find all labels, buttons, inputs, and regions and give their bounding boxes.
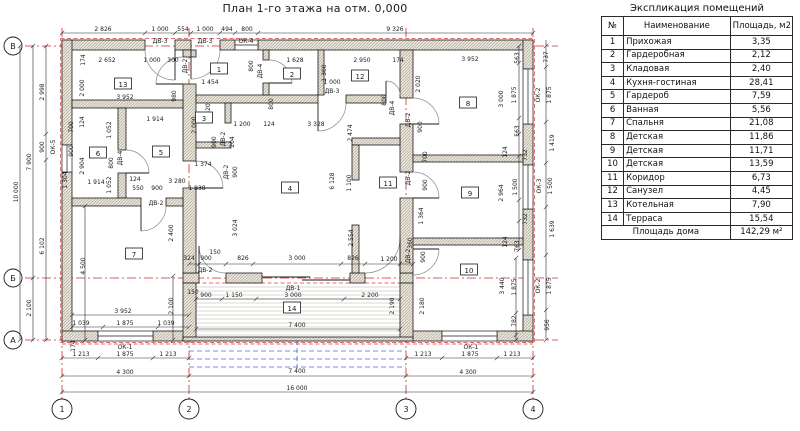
dimension-label: 2 652: [98, 57, 115, 64]
dimension-label: ДВ-4: [257, 63, 264, 78]
table-row: 13Котельная7,90: [602, 199, 793, 213]
room-number: 4: [288, 185, 293, 193]
dimension-label: 1 150: [225, 292, 242, 299]
schedule-table: № Наименование Площадь, м2 1Прихожая3,35…: [601, 16, 793, 240]
dimension-label: 1 213: [159, 351, 176, 358]
dimension-label: 3 328: [307, 121, 324, 128]
room-number: 5: [159, 149, 163, 157]
table-cell: Санузел: [624, 185, 731, 199]
table-cell: 21,08: [730, 117, 792, 131]
dimension-label: 1 100: [346, 174, 353, 191]
room-number: 7: [132, 251, 136, 259]
dimension-label: 900: [417, 121, 424, 133]
room-number-tag: 3: [196, 112, 213, 123]
table-cell: 11,71: [730, 144, 792, 158]
dimension-label: 900: [68, 145, 75, 157]
dimension-label: ДВ-3: [198, 38, 213, 45]
dimension-label: 900: [151, 185, 163, 192]
dimension-label: 1 000: [151, 26, 168, 33]
dimension-label: 900: [232, 166, 239, 178]
dimension-label: 1 052: [106, 176, 113, 193]
dimension-label: 3 952: [116, 94, 133, 101]
table-cell: Кладовая: [624, 63, 731, 77]
table-cell: Терраса: [624, 212, 731, 226]
dimension-line: [60, 31, 535, 35]
table-cell: 28,41: [730, 76, 792, 90]
dimension-label: 2 964: [498, 184, 505, 201]
dimension-label: 324: [183, 255, 195, 262]
table-row: 8Детская11,86: [602, 131, 793, 145]
table-cell: 11,86: [730, 131, 792, 145]
room-number-tag: 8: [460, 97, 477, 108]
dimension-label: 1 213: [72, 351, 89, 358]
dimension-label: 1 875: [546, 277, 553, 294]
dimension-label: 1 500: [547, 177, 554, 194]
table-row: 5Гардероб7,59: [602, 90, 793, 104]
table-cell: 13: [602, 199, 624, 213]
dimension-label: 2 200: [361, 292, 378, 299]
dimension-label: 1 875: [116, 320, 133, 327]
dimension-label: 900: [420, 251, 427, 263]
dimension-label: 150: [187, 289, 199, 296]
dimension-label: 554: [177, 26, 189, 33]
dimension-label: 16 000: [287, 385, 308, 392]
dimension-label: 782: [511, 315, 518, 327]
dimension-label: 1 628: [286, 57, 303, 64]
grid-bubble: 4: [523, 399, 543, 419]
dimension-label: 150: [209, 249, 221, 256]
room-number-tag: 10: [461, 264, 478, 275]
grid-bubble: Б: [4, 269, 22, 287]
dimension-label: ОК-2: [535, 278, 542, 293]
dimension-label: 1 213: [503, 351, 520, 358]
dimension-label: 4 500: [80, 257, 87, 274]
table-cell: 2,12: [730, 49, 792, 63]
dimension-label: 2 100: [168, 297, 175, 314]
dimension-label: 2 400: [168, 224, 175, 241]
dimension-label: 1 000: [196, 26, 213, 33]
table-cell: 4,45: [730, 185, 792, 199]
dimension-label: 3 000: [288, 255, 305, 262]
grid-bubble: А: [4, 331, 22, 349]
grid-bubble-label: А: [10, 336, 16, 345]
table-cell: Детская: [624, 158, 731, 172]
dimension-label: 2 190: [389, 297, 396, 314]
dimension-label: 800: [241, 26, 253, 33]
dimension-label: 1 454: [201, 79, 218, 86]
dimension-label: 900: [200, 255, 212, 262]
table-cell: 6: [602, 103, 624, 117]
table-row: 6Ванная5,56: [602, 103, 793, 117]
dimension-label: ДВ-4: [117, 150, 124, 165]
room-number-tag: 11: [380, 177, 397, 188]
dimension-label: 2 000: [79, 79, 86, 96]
dimension-label: 800: [268, 98, 275, 110]
dimension-label: 1 875: [546, 86, 553, 103]
dimension-label: 3 024: [232, 219, 239, 236]
table-cell: 8: [602, 131, 624, 145]
table-cell: Ванная: [624, 103, 731, 117]
dimension-label: 550: [132, 185, 144, 192]
total-area-value: 142,29 м²: [730, 226, 792, 240]
room-number-tag: 4: [282, 182, 299, 193]
dimension-label: 7 400: [288, 368, 305, 375]
col-header-area: Площадь, м2: [730, 17, 792, 36]
dimension-label: 1 875: [511, 86, 518, 103]
schedule-title: Экспликация помещений: [601, 3, 793, 14]
dimension-label: ОК-4: [239, 38, 254, 45]
dimension-label: 3 440: [499, 277, 506, 294]
dimension-label: ДВ-2: [220, 131, 227, 146]
dimension-label: 2 998: [39, 83, 46, 100]
table-cell: Гардероб: [624, 90, 731, 104]
dimension-label: 10 000: [13, 181, 20, 202]
table-row: 14Терраса15,54: [602, 212, 793, 226]
dimension-label: ОК-2: [535, 87, 542, 102]
dimension-label: 1 000: [143, 57, 160, 64]
table-cell: Кухня-гостиная: [624, 76, 731, 90]
dimension-label: 1 419: [549, 134, 556, 151]
dimension-label: 204: [229, 136, 236, 148]
room-number: 2: [290, 71, 294, 79]
dimension-label: ДВ-2: [182, 58, 189, 73]
dimension-label: ОК-1: [118, 344, 133, 351]
room-number-tag: 9: [462, 187, 479, 198]
grid-bubble-label: Б: [10, 274, 16, 283]
room-number: 14: [288, 305, 297, 313]
room-number-tag: 12: [352, 70, 369, 81]
dimension-label: 174: [70, 340, 77, 352]
dimension-label: ДВ-2: [223, 164, 230, 179]
dimension-label: 732: [522, 213, 529, 225]
table-cell: Гардеробная: [624, 49, 731, 63]
dimension-label: 494: [221, 26, 233, 33]
dimension-label: 563: [514, 52, 521, 64]
dimension-label: 3 000: [498, 90, 505, 107]
grid-bubble-label: В: [10, 42, 16, 51]
table-cell: 2,40: [730, 63, 792, 77]
dimension-label: ДВ-3: [325, 88, 340, 95]
dimension-label: ДВ-2: [405, 112, 412, 127]
dimension-label: 1 838: [188, 185, 205, 192]
dimension-label: 737: [543, 51, 550, 63]
dimension-label: ДВ-2: [149, 200, 164, 207]
room-number: 6: [96, 150, 101, 158]
table-cell: Котельная: [624, 199, 731, 213]
table-cell: 10: [602, 158, 624, 172]
dimension-label: 174: [80, 54, 87, 66]
room-schedule: Экспликация помещений № Наименование Пло…: [601, 3, 793, 240]
dimension-label: 1 200: [380, 256, 397, 263]
table-cell: 6,73: [730, 171, 792, 185]
grid-bubble: В: [4, 37, 22, 55]
dimension-label: 1 374: [194, 161, 211, 168]
room-number: 12: [356, 73, 365, 81]
table-row: 11Коридор6,73: [602, 171, 793, 185]
dimension-label: 124: [263, 121, 275, 128]
dimension-label: 4 300: [116, 369, 133, 376]
dimension-label: 2 180: [419, 297, 426, 314]
dimension-label: 1 052: [106, 121, 113, 138]
dimension-label: 1 000: [323, 79, 340, 86]
room-number: 8: [466, 100, 470, 108]
dimension-label: 4 300: [459, 369, 476, 376]
grid-bubble-label: 4: [530, 405, 535, 414]
dimension-label: 800: [381, 94, 388, 106]
grid-bubble-label: 1: [59, 405, 64, 414]
room-number-tag: 14: [284, 302, 301, 313]
dimension-label: 800: [108, 157, 115, 169]
room-number-tag: 13: [115, 78, 132, 89]
dimension-label: 732: [522, 149, 529, 161]
table-cell: 4: [602, 76, 624, 90]
dimension-label: 1 914: [146, 116, 163, 123]
table-cell: 5: [602, 90, 624, 104]
dimension-label: 124: [79, 116, 86, 128]
dimension-label: 956: [544, 319, 551, 331]
col-header-number: №: [602, 17, 624, 36]
dimension-label: ОК-1: [464, 344, 479, 351]
table-cell: 5,56: [730, 103, 792, 117]
table-footer-row: Площадь дома 142,29 м²: [602, 226, 793, 240]
table-cell: 15,54: [730, 212, 792, 226]
grid-bubble: 3: [396, 399, 416, 419]
dimension-label: ДВ-2: [198, 267, 213, 274]
dimension-label: 1 364: [418, 207, 425, 224]
dimension-label: 1 304: [62, 171, 69, 188]
table-row: 3Кладовая2,40: [602, 63, 793, 77]
grid-bubble-label: 3: [403, 405, 408, 414]
dimension-label: 1 200: [233, 121, 250, 128]
table-cell: 7,59: [730, 90, 792, 104]
dimension-label: 124: [502, 146, 509, 158]
dimension-label: 1 039: [72, 320, 89, 327]
room-number: 13: [119, 81, 128, 89]
dimension-label: 1 875: [511, 278, 518, 295]
table-cell: 9: [602, 144, 624, 158]
table-row: 2Гардеробная2,12: [602, 49, 793, 63]
dimension-label: 700: [68, 121, 75, 133]
table-row: 9Детская11,71: [602, 144, 793, 158]
dimension-label: ДВ-3: [153, 38, 168, 45]
grid-bubble: 1: [52, 399, 72, 419]
table-cell: 14: [602, 212, 624, 226]
table-cell: 11: [602, 171, 624, 185]
room-number: 10: [465, 267, 474, 275]
table-cell: 7,90: [730, 199, 792, 213]
table-cell: 3: [602, 63, 624, 77]
table-cell: 12: [602, 185, 624, 199]
table-cell: Прихожая: [624, 36, 731, 50]
room-number: 1: [217, 66, 221, 74]
dimension-label: 1 500: [512, 178, 519, 195]
dimension-label: 9 326: [386, 26, 403, 33]
dimension-label: 1 914: [87, 179, 104, 186]
room-number: 11: [384, 180, 393, 188]
dimension-label: 900: [211, 136, 218, 148]
table-cell: Детская: [624, 131, 731, 145]
dimension-label: 2 020: [415, 75, 422, 92]
room-number: 3: [202, 115, 206, 123]
table-cell: 13,59: [730, 158, 792, 172]
dimension-label: 563: [514, 125, 521, 137]
dimension-label: 1 039: [157, 320, 174, 327]
dimension-label: 2 100: [26, 299, 33, 316]
dimension-label: ДВ-2: [405, 170, 412, 185]
dimension-line: [514, 256, 518, 342]
table-cell: 3,35: [730, 36, 792, 50]
dimension-label: ОК-3: [536, 178, 543, 193]
dimension-line: [517, 44, 521, 252]
dimension-label: 300: [167, 57, 179, 64]
dimension-label: 124: [502, 236, 509, 248]
dimension-label: 3 280: [168, 178, 185, 185]
dimension-label: 1 639: [549, 220, 556, 237]
table-cell: Спальня: [624, 117, 731, 131]
dimension-label: ДВ-4: [389, 100, 396, 115]
dimension-label: 7 400: [288, 322, 305, 329]
room-number-tag: 5: [153, 146, 170, 157]
col-header-name: Наименование: [624, 17, 731, 36]
table-row: 7Спальня21,08: [602, 117, 793, 131]
dimension-label: 826: [347, 255, 359, 262]
dimension-label: 900: [39, 141, 46, 153]
grid-bubble-label: 2: [186, 405, 191, 414]
room-number-tag: 2: [284, 68, 301, 79]
dimension-label: 1 875: [461, 351, 478, 358]
dimension-label: 6 102: [39, 237, 46, 254]
table-cell: Коридор: [624, 171, 731, 185]
grid-bubble: 2: [179, 399, 199, 419]
dimension-label: ДВ-1: [286, 285, 301, 292]
dimension-label: 1 875: [116, 351, 133, 358]
dimension-line: [31, 44, 35, 342]
dimension-label: 3 000: [284, 292, 301, 299]
dimension-label: 6 128: [329, 172, 336, 189]
table-cell: 2: [602, 49, 624, 63]
room-number-tag: 1: [211, 63, 228, 74]
dimension-label: 700: [422, 151, 429, 163]
table-row: 1Прихожая3,35: [602, 36, 793, 50]
table-row: 4Кухня-гостиная28,41: [602, 76, 793, 90]
total-label: Площадь дома: [602, 226, 731, 240]
dimension-label: 763: [514, 240, 521, 252]
dimension-label: 2 826: [94, 26, 111, 33]
dimension-label: ОК-5: [50, 139, 57, 154]
table-cell: 7: [602, 117, 624, 131]
room-number: 9: [468, 190, 472, 198]
dimension-label: 1 213: [414, 351, 431, 358]
table-row: 12Санузел4,45: [602, 185, 793, 199]
dimension-label: 2 950: [353, 57, 370, 64]
dimension-label: 124: [129, 176, 141, 183]
room-number-tag: 6: [90, 147, 107, 158]
dimension-label: 2 904: [79, 157, 86, 174]
room-number-tag: 7: [126, 248, 143, 259]
dimension-label: 826: [237, 255, 249, 262]
dimension-label: 980: [171, 90, 178, 102]
dimension-label: 800: [248, 60, 255, 72]
dimension-label: 900: [422, 179, 429, 191]
table-row: 10Детская13,59: [602, 158, 793, 172]
dimension-label: 3 952: [461, 56, 478, 63]
dimension-label: ДВ-2: [405, 248, 412, 263]
floor-plan-page: План 1-го этажа на отм. 0,000: [0, 0, 800, 431]
table-cell: Детская: [624, 144, 731, 158]
dimension-label: 900: [200, 292, 212, 299]
dimension-label: 360: [407, 237, 414, 249]
dimension-label: 7 900: [26, 153, 33, 170]
dimension-label: 2 474: [347, 124, 354, 141]
dimension-label: 174: [392, 57, 404, 64]
table-cell: 1: [602, 36, 624, 50]
dimension-label: 3 952: [114, 308, 131, 315]
dimension-label: 2 554: [348, 229, 355, 246]
